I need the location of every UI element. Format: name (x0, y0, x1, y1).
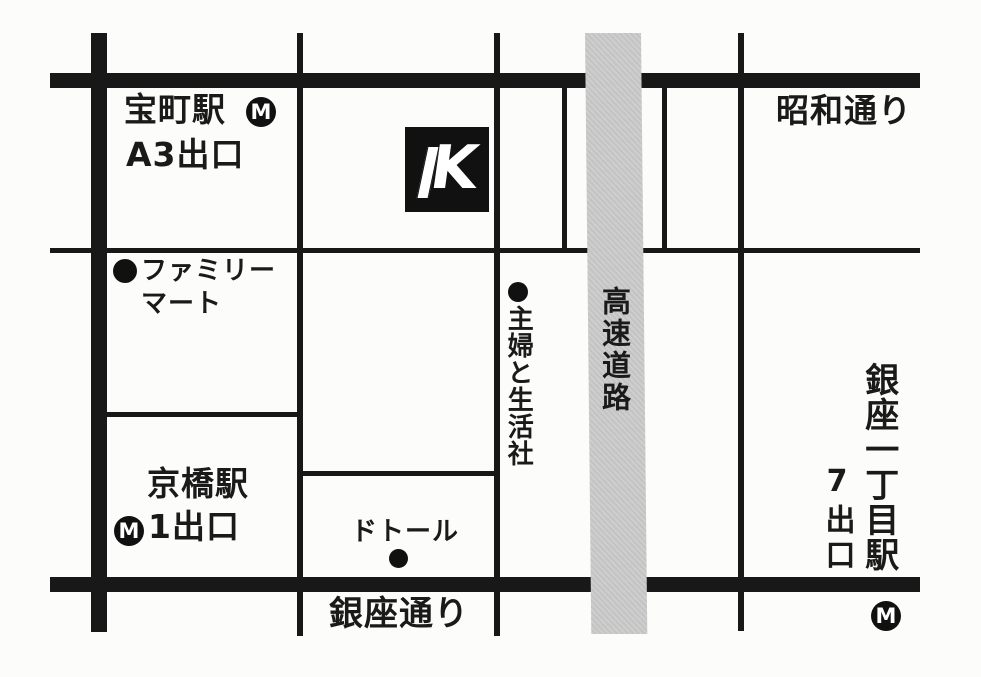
road-showa-dori (50, 73, 920, 88)
street-horizontal-2 (97, 412, 300, 417)
doutor-label: ドトール (351, 519, 459, 546)
street-vertical-1 (297, 33, 303, 636)
road-vertical-main (91, 33, 107, 632)
street-vertical-5 (738, 33, 744, 631)
familymart-label-line2: マート (141, 288, 276, 321)
shufu-to-seikatsusha-label: 主婦と生活社 (504, 305, 531, 467)
logo-k-letter: K (426, 133, 482, 203)
street-vertical-2 (494, 33, 500, 636)
street-horizontal-3 (297, 471, 500, 476)
metro-icon-ginza-itchome: M (871, 601, 901, 631)
kyobashi-station-label: 京橋駅 (147, 467, 249, 502)
company-logo: K (405, 127, 489, 212)
doutor-dot-icon (389, 549, 408, 568)
familymart-label: ファミリー マート (141, 255, 276, 321)
kyobashi-exit-label: 1出口 (148, 510, 240, 545)
takaracho-station-label: 宝町駅 (124, 93, 226, 128)
familymart-label-line1: ファミリー (141, 255, 276, 288)
showa-dori-label: 昭和通り (776, 94, 912, 129)
road-ginza-dori (50, 577, 920, 592)
street-vertical-3 (562, 88, 567, 252)
metro-icon-kyobashi: M (114, 516, 144, 546)
ginza-dori-label: 銀座通り (329, 597, 469, 633)
street-horizontal-1 (50, 248, 920, 253)
ginza-itchome-exit-label: 7出口 (821, 464, 853, 574)
ginza-itchome-station-label: 銀座一丁目駅 (860, 362, 896, 572)
metro-icon-takaracho: M (246, 97, 276, 127)
street-vertical-4 (662, 88, 667, 252)
expressway-label: 高速道路 (599, 286, 629, 414)
familymart-dot-icon (113, 259, 137, 283)
access-map: 高速道路 K 宝町駅 M A3出口 昭和通り ファミリー マート 主婦と生活社 … (0, 0, 981, 677)
takaracho-exit-label: A3出口 (126, 138, 245, 173)
shufu-dot-icon (508, 282, 528, 302)
